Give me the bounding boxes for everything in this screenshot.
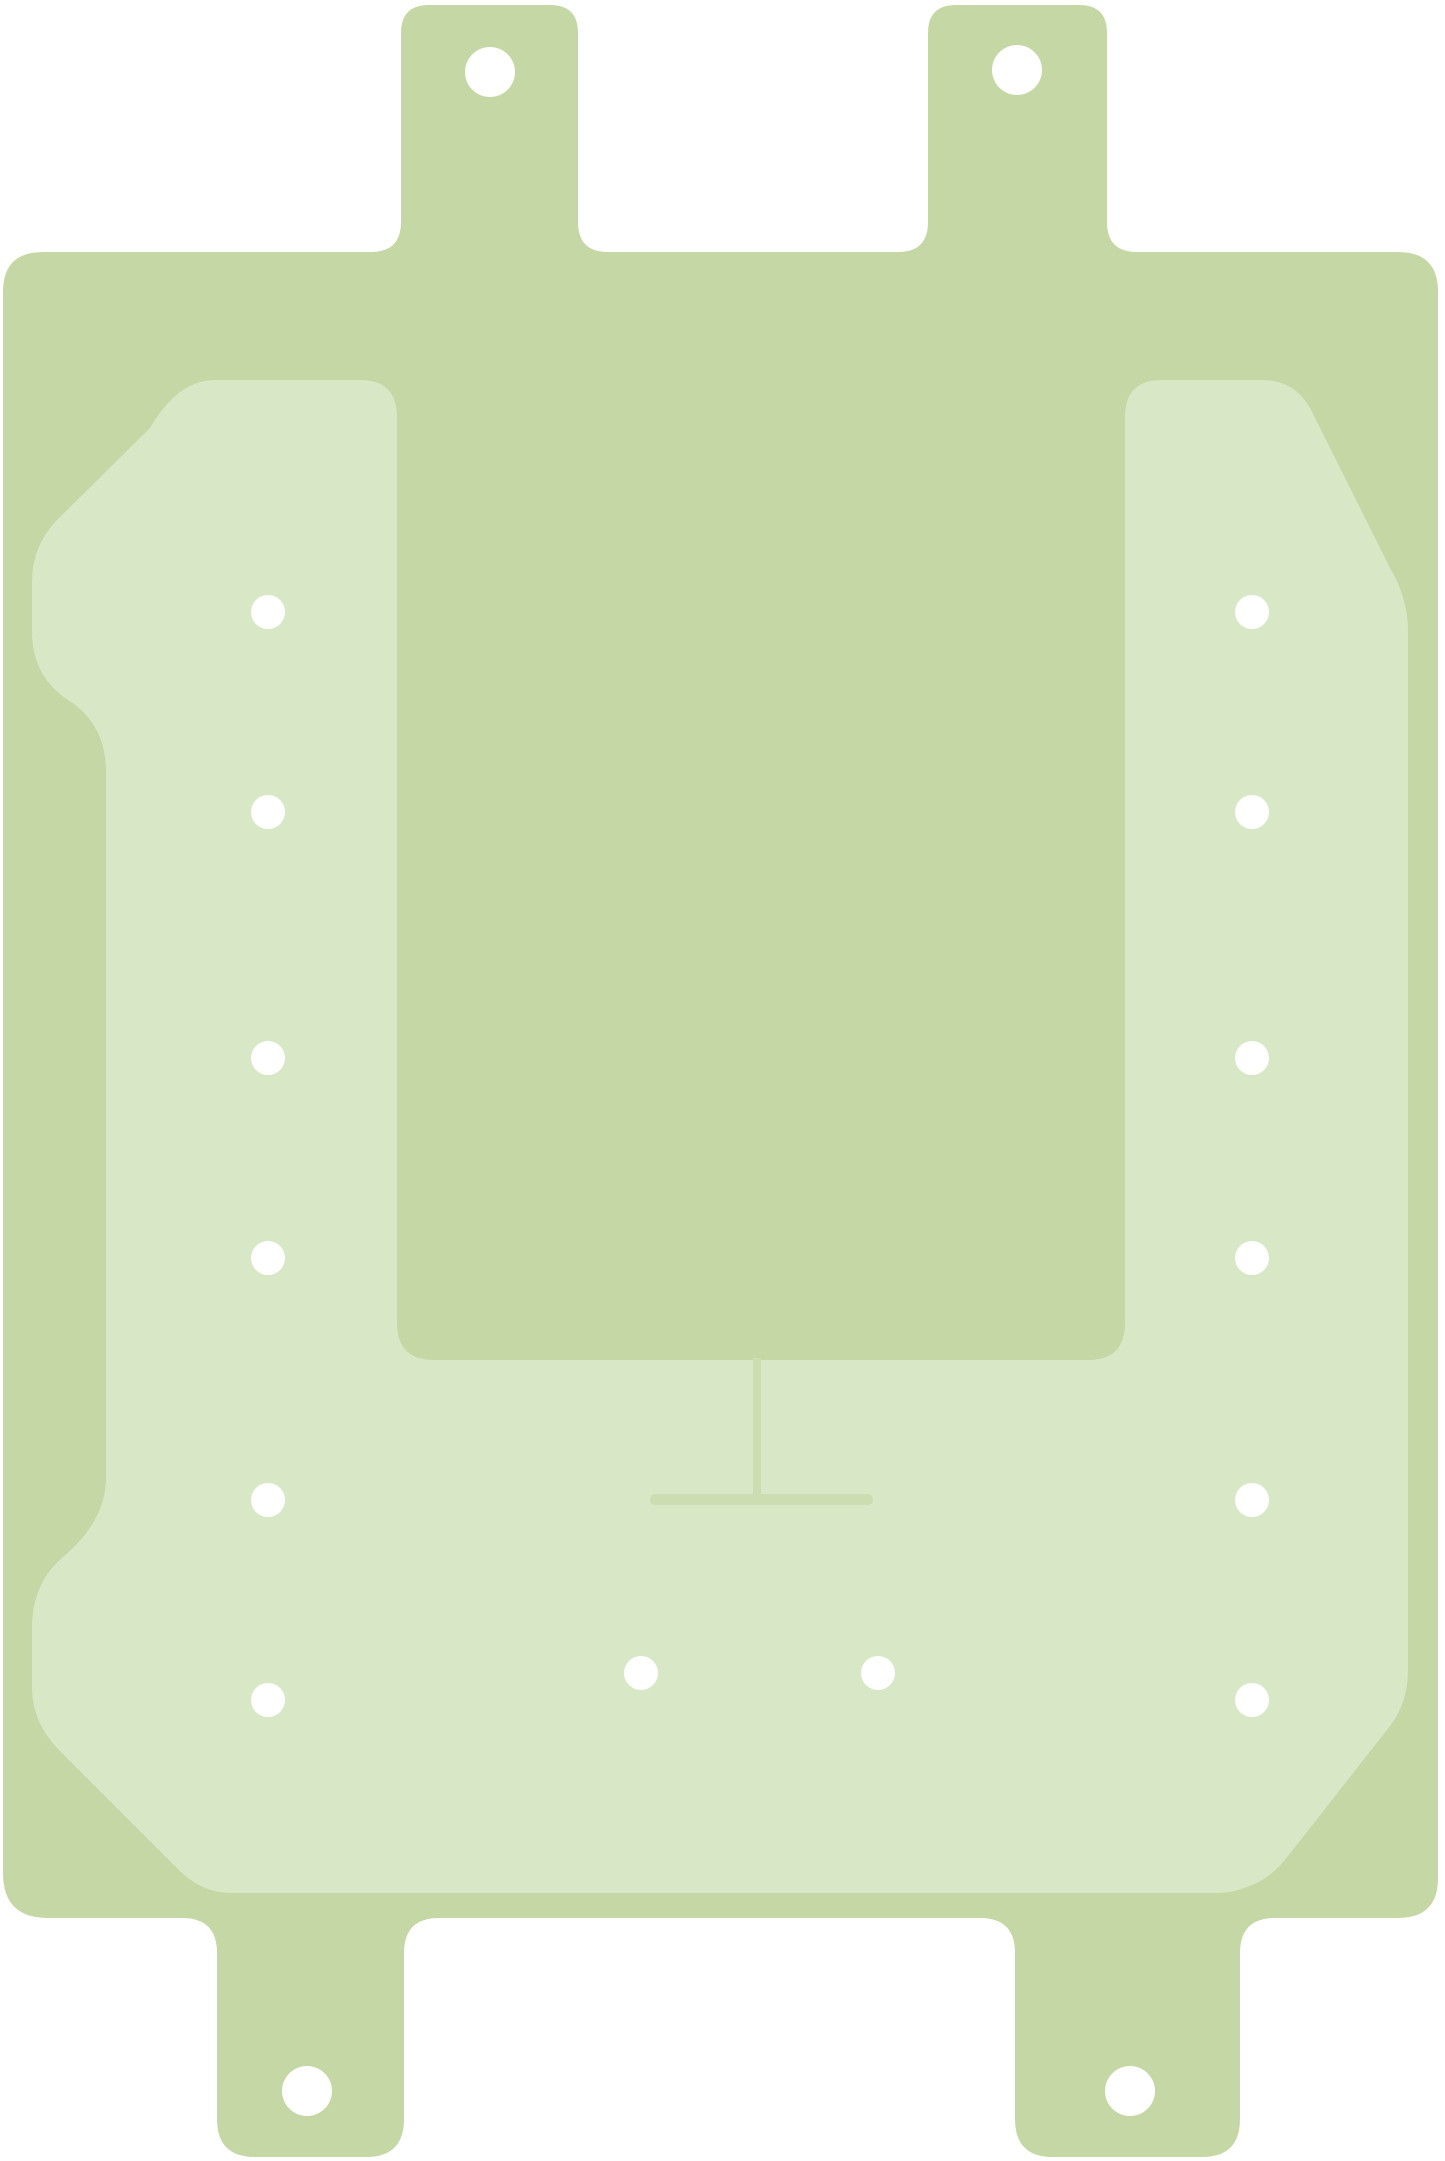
- punch-hole: [1105, 2066, 1155, 2116]
- punch-hole: [251, 1483, 285, 1517]
- punch-hole: [251, 1683, 285, 1717]
- punch-hole: [251, 1041, 285, 1075]
- punch-hole: [465, 47, 515, 97]
- punch-hole: [1235, 1683, 1269, 1717]
- punch-hole: [992, 45, 1042, 95]
- alignment-line-vertical: [753, 1358, 761, 1500]
- punch-hole: [1235, 1241, 1269, 1275]
- punch-hole: [1235, 1483, 1269, 1517]
- adhesive-sheet-illustration: [0, 0, 1445, 2161]
- punch-hole: [1235, 595, 1269, 629]
- alignment-line-horizontal: [650, 1494, 873, 1505]
- gasket-sheet-image: [0, 0, 1445, 2161]
- punch-hole: [251, 595, 285, 629]
- punch-hole: [1235, 1041, 1269, 1075]
- punch-hole: [861, 1656, 895, 1690]
- punch-hole: [251, 795, 285, 829]
- punch-hole: [1235, 795, 1269, 829]
- punch-hole: [624, 1656, 658, 1690]
- punch-hole: [251, 1241, 285, 1275]
- punch-hole: [282, 2066, 332, 2116]
